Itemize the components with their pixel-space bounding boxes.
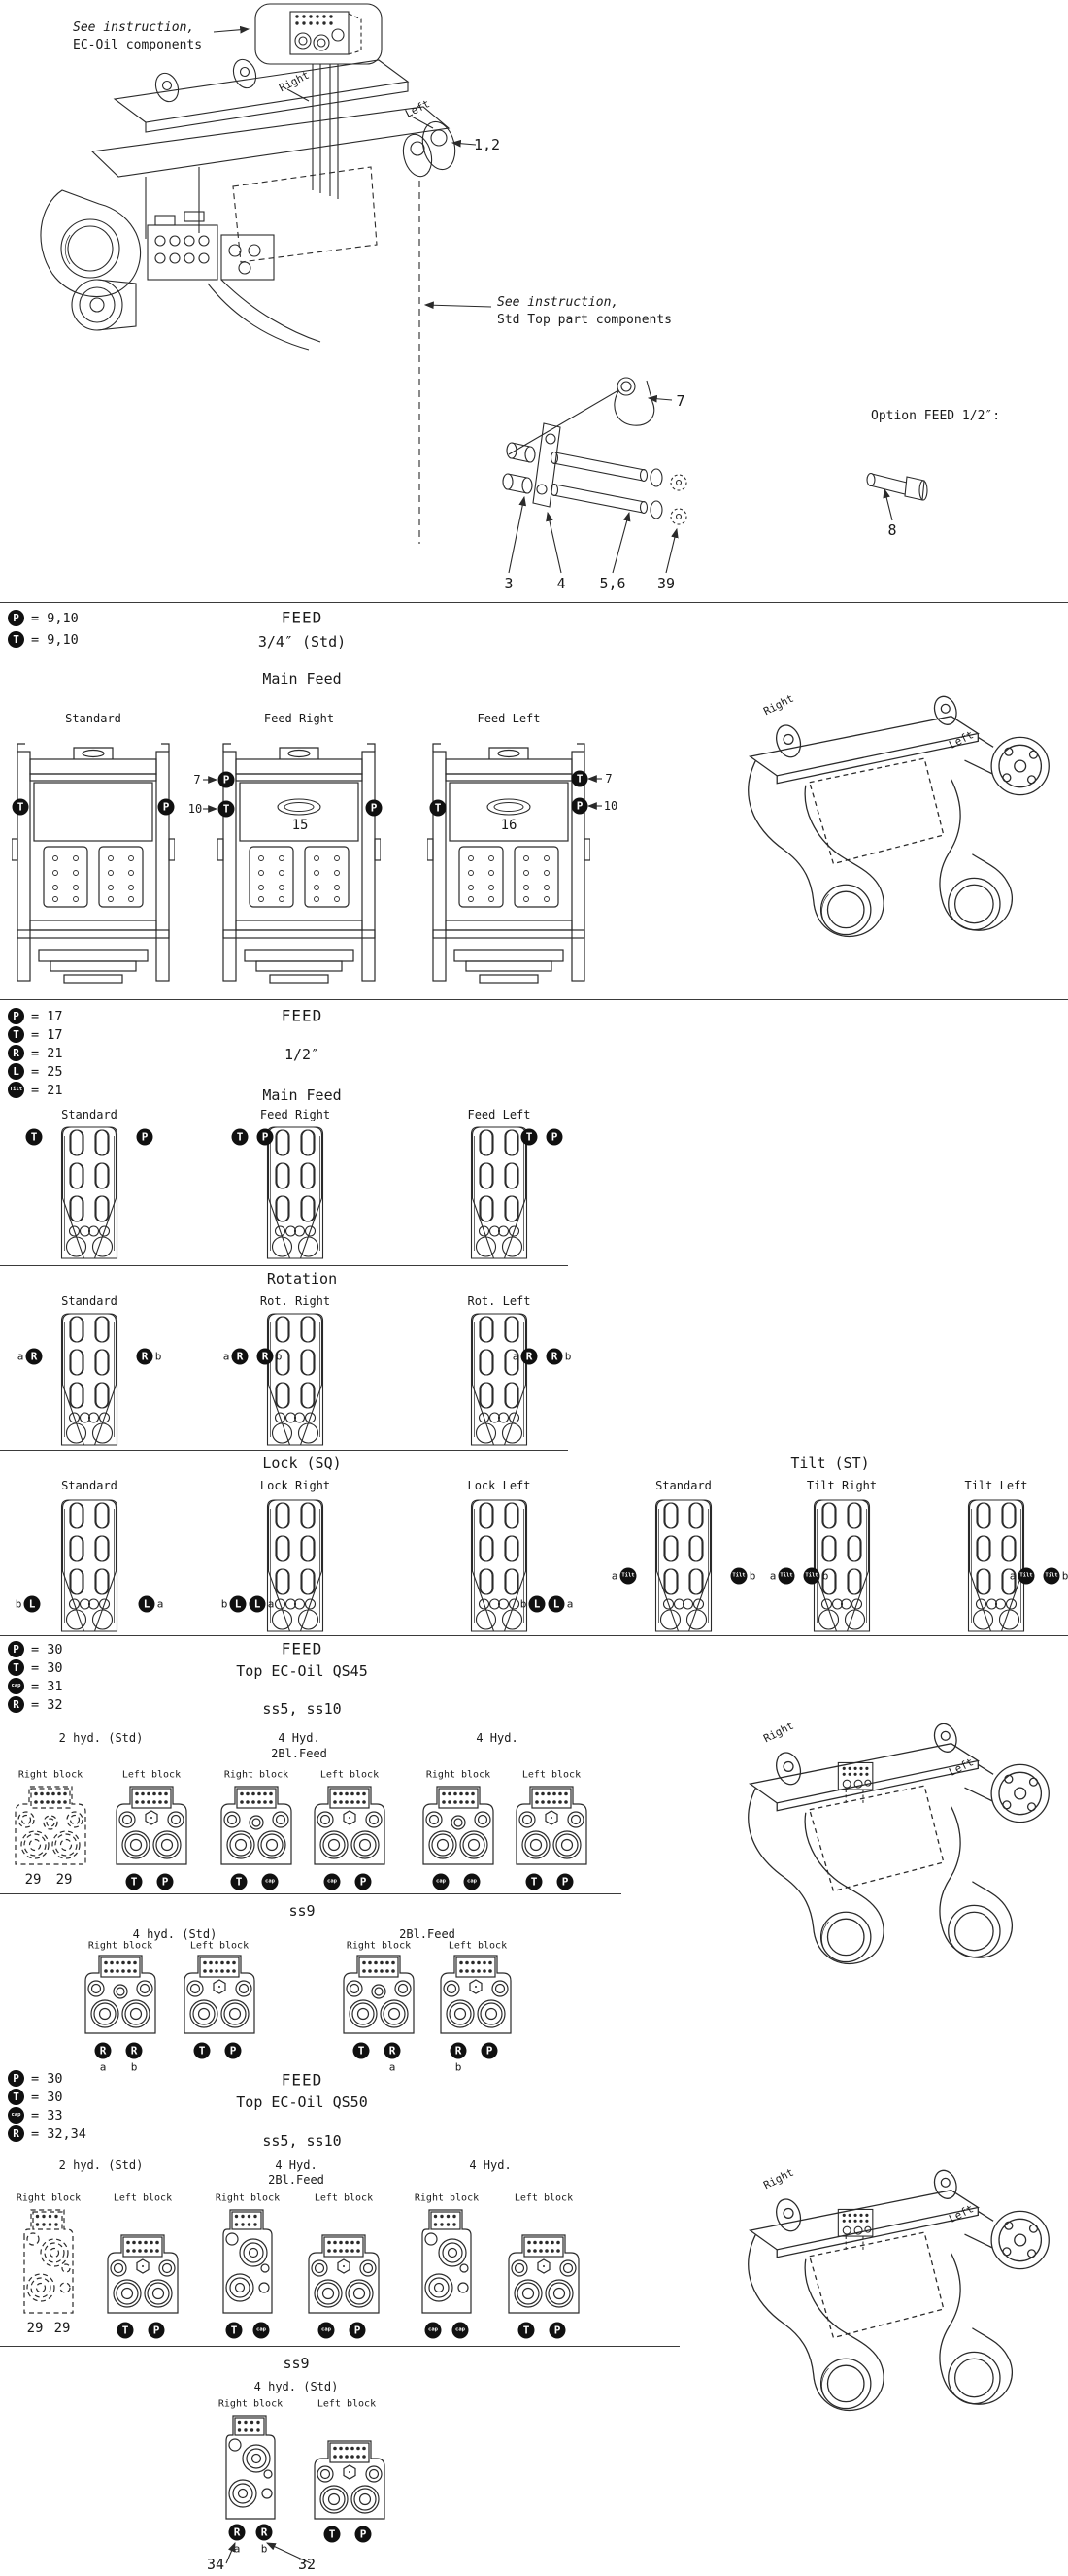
rotation-left-title: Rot. Left xyxy=(467,1294,530,1308)
port-letter-b: b xyxy=(16,1598,22,1611)
port-badge-p: P xyxy=(8,2070,24,2087)
feed12-heading: FEED xyxy=(282,1007,323,1025)
port-letter-b: b xyxy=(750,1570,756,1583)
part-label-1-2: 1,2 xyxy=(474,136,500,153)
hydraulic-block-left xyxy=(181,1952,258,2037)
qs45-ss9-title: ss9 xyxy=(288,1902,315,1920)
feed34-size: 3/4″ (Std) xyxy=(258,633,346,651)
port-badge-cap: cap xyxy=(324,1874,341,1890)
port-badge-t: T xyxy=(526,1874,543,1890)
qs45-sizes: ss5, ss10 xyxy=(262,1700,341,1718)
legend-value: = 17 xyxy=(31,1027,63,1043)
qs45-ss9-cfg2-title: 2Bl.Feed xyxy=(399,1927,455,1941)
port-badge-p: P xyxy=(137,1129,153,1146)
port-letter-b: b xyxy=(155,1351,162,1363)
port-badge-cap: cap xyxy=(253,2323,270,2339)
plate-pair xyxy=(223,1311,367,1447)
port-badge-p: P xyxy=(355,1874,372,1890)
coupler-side-view-drawing-3 xyxy=(723,2165,1068,2453)
left-block-label: Left block xyxy=(114,2193,172,2204)
hydraulic-block-left xyxy=(513,1783,590,1868)
right-block-label: Right block xyxy=(426,1770,490,1781)
part-label-8: 8 xyxy=(887,521,896,539)
qs45-heading: FEED xyxy=(282,1640,323,1658)
port-badge-r: R xyxy=(8,2125,24,2142)
subsection-divider xyxy=(0,1450,568,1451)
plate-pair xyxy=(427,1124,571,1260)
port-badge-tilt: Tilt xyxy=(731,1568,748,1585)
qs45-cfg2-title: 4 Hyd. xyxy=(278,1731,319,1745)
port-badge-l: L xyxy=(250,1596,266,1613)
port-badge-l: L xyxy=(529,1596,546,1613)
port-badge-p: P xyxy=(8,610,24,626)
port-badge-t: T xyxy=(572,771,588,787)
port-letter-a: a xyxy=(223,1351,230,1363)
legend-value: = 32,34 xyxy=(31,2126,86,2142)
port-badge-t: T xyxy=(13,799,29,816)
port-letter-a: a xyxy=(389,2061,396,2074)
hydraulic-block-left xyxy=(311,2437,388,2523)
port-letter-b: b xyxy=(1062,1570,1068,1583)
port-badge-p: P xyxy=(157,1874,174,1890)
part-label-29: 29 xyxy=(56,1872,73,1888)
legend-row-r: R = 32 xyxy=(8,1696,63,1713)
port-badge-r: R xyxy=(126,2043,143,2059)
left-block-label: Left block xyxy=(320,1770,379,1781)
qs45-cfg1-title: 2 hyd. (Std) xyxy=(59,1731,144,1745)
part-label-3: 3 xyxy=(504,575,513,592)
subsection-divider xyxy=(0,1265,568,1266)
plate-pair xyxy=(223,1497,367,1633)
subsection-divider xyxy=(0,1893,621,1894)
port-badge-p: P xyxy=(355,2526,372,2543)
plate-pair xyxy=(427,1497,571,1633)
port-letter-b: b xyxy=(565,1351,572,1363)
legend-row-p: P = 30 xyxy=(8,2070,63,2087)
part-label-15: 15 xyxy=(292,818,309,833)
port-letter-a: a xyxy=(770,1570,777,1583)
subsection-divider xyxy=(0,2346,680,2347)
tilt-left-title: Tilt Left xyxy=(964,1479,1027,1492)
hydraulic-block-right-dashed xyxy=(21,2206,76,2317)
hydraulic-block-left xyxy=(437,1952,515,2037)
port-badge-t: T xyxy=(521,1129,538,1146)
bracket-drawing-feed-left xyxy=(427,730,590,995)
lock-right-title: Lock Right xyxy=(260,1479,330,1492)
port-letter-a: a xyxy=(513,1351,519,1363)
port-badge-l: L xyxy=(549,1596,565,1613)
ref-arrows-right-cfg xyxy=(203,772,218,815)
left-block-label: Left block xyxy=(317,2399,376,2410)
port-badge-tilt: Tilt xyxy=(804,1568,820,1585)
port-badge-p: P xyxy=(8,1641,24,1657)
plate-pair xyxy=(17,1497,161,1633)
main-feed-right-title: Feed Right xyxy=(260,1108,330,1121)
hydraulic-block-right xyxy=(419,2206,474,2317)
port-badge-t: T xyxy=(218,801,235,818)
main-feed-title: Main Feed xyxy=(262,1087,341,1104)
port-letter-b: b xyxy=(822,1570,829,1583)
feed12-size: 1/2″ xyxy=(284,1046,319,1063)
port-badge-t: T xyxy=(226,2323,243,2339)
qs45-cfg3-title: 4 Hyd. xyxy=(476,1731,517,1745)
legend-value: = 9,10 xyxy=(31,611,79,626)
port-badge-l: L xyxy=(8,1063,24,1080)
legend-row-t: T = 30 xyxy=(8,1659,63,1676)
ref-label-10: 10 xyxy=(188,802,202,816)
port-badge-t: T xyxy=(8,631,24,648)
port-badge-p: P xyxy=(557,1874,574,1890)
legend-value: = 21 xyxy=(31,1083,63,1098)
coupler-side-view-drawing-2 xyxy=(723,1719,1068,2006)
port-letter-b: b xyxy=(520,1598,527,1611)
qs50-cfg2-subtitle: 2Bl.Feed xyxy=(268,2173,324,2187)
port-badge-tilt: Tilt xyxy=(620,1568,637,1585)
port-badge-p: P xyxy=(257,1129,274,1146)
port-badge-p: P xyxy=(218,772,235,788)
port-badge-r: R xyxy=(8,1045,24,1061)
port-letter-a: a xyxy=(100,2061,107,2074)
bracket-drawing-feed-right xyxy=(217,730,381,995)
plate-pair xyxy=(770,1497,914,1633)
port-badge-l: L xyxy=(139,1596,155,1613)
legend-row-cap: cap = 31 xyxy=(8,1678,63,1694)
left-block-label: Left block xyxy=(190,1941,249,1952)
qs50-heading: FEED xyxy=(282,2071,323,2090)
legend-value: = 21 xyxy=(31,1046,63,1061)
port-letter-b: b xyxy=(455,2061,462,2074)
qs45-ss9-cfg1-title: 4 hyd. (Std) xyxy=(133,1927,217,1941)
ref-label-7: 7 xyxy=(605,772,612,786)
legend-row-r: R = 21 xyxy=(8,1045,63,1061)
port-badge-tilt: Tilt xyxy=(1044,1568,1060,1585)
qs45-cfg2-subtitle: 2Bl.Feed xyxy=(271,1747,327,1760)
plate-pair xyxy=(17,1124,161,1260)
port-badge-cap: cap xyxy=(464,1874,481,1890)
feed-grommet-right xyxy=(276,798,322,816)
rotation-title: Rotation xyxy=(267,1270,337,1288)
qs50-model: Top EC-Oil QS50 xyxy=(236,2093,367,2111)
legend-value: = 30 xyxy=(31,1660,63,1676)
hydraulic-block-left xyxy=(311,1783,388,1868)
legend-row-t: T = 30 xyxy=(8,2089,63,2105)
legend-value: = 9,10 xyxy=(31,632,79,648)
legend-value: = 31 xyxy=(31,1679,63,1694)
part-label-4: 4 xyxy=(556,575,565,592)
port-badge-t: T xyxy=(194,2043,211,2059)
port-badge-cap: cap xyxy=(452,2323,469,2339)
ref-arrows-left-cfg xyxy=(586,771,602,814)
hydraulic-block-left xyxy=(104,2231,182,2317)
left-block-label: Left block xyxy=(522,1770,581,1781)
part-label-29: 29 xyxy=(54,2321,71,2336)
feed34-group-title: Main Feed xyxy=(262,670,341,687)
legend-value: = 33 xyxy=(31,2108,63,2124)
port-letter-b: b xyxy=(221,1598,228,1611)
ref-label-10: 10 xyxy=(604,799,617,813)
port-badge-p: P xyxy=(550,2323,566,2339)
ec-oil-callout-note: See instruction, EC-Oil components xyxy=(73,19,202,54)
plate-pair xyxy=(17,1311,161,1447)
port-badge-r: R xyxy=(547,1349,563,1365)
legend-row-r: R = 32,34 xyxy=(8,2125,86,2142)
right-block-label: Right block xyxy=(216,2193,280,2204)
port-badge-l: L xyxy=(230,1596,247,1613)
right-block-label: Right block xyxy=(218,2399,283,2410)
legend-row-p: P = 9,10 xyxy=(8,610,79,626)
lock-title: Lock (SQ) xyxy=(262,1455,341,1472)
hydraulic-block-right-dashed xyxy=(12,1783,89,1868)
port-badge-p: P xyxy=(350,2323,366,2339)
port-badge-t: T xyxy=(518,2323,535,2339)
feed34-cfg-standard-title: Standard xyxy=(65,712,121,725)
port-badge-t: T xyxy=(126,1874,143,1890)
port-badge-t: T xyxy=(430,800,447,817)
ec-oil-note-line1: See instruction, xyxy=(73,19,202,37)
std-top-callout-note: See instruction, Std Top part components xyxy=(497,294,672,329)
qs45-model: Top EC-Oil QS45 xyxy=(236,1662,367,1680)
port-badge-r: R xyxy=(137,1349,153,1365)
rotation-right-title: Rot. Right xyxy=(260,1294,330,1308)
part-label-34: 34 xyxy=(207,2556,224,2573)
port-badge-r: R xyxy=(384,2043,401,2059)
port-badge-r: R xyxy=(257,1349,274,1365)
port-badge-p: P xyxy=(149,2323,165,2339)
qs50-cfg2-title: 4 Hyd. xyxy=(275,2158,317,2172)
legend-value: = 30 xyxy=(31,1642,63,1657)
feed34-heading: FEED xyxy=(282,609,323,627)
port-badge-t: T xyxy=(8,2089,24,2105)
qs50-cfg3-title: 4 Hyd. xyxy=(469,2158,511,2172)
section-divider xyxy=(0,602,1068,603)
port-letter-a: a xyxy=(567,1598,574,1611)
part-label-32: 32 xyxy=(298,2556,316,2573)
std-top-note-line2: Std Top part components xyxy=(497,312,672,329)
part-label-29: 29 xyxy=(25,1872,42,1888)
port-letter-b: b xyxy=(276,1351,283,1363)
hydraulic-block-right xyxy=(220,2206,275,2317)
legend-row-t: T = 9,10 xyxy=(8,631,79,648)
left-block-label: Left block xyxy=(515,2193,573,2204)
port-badge-t: T xyxy=(232,1129,249,1146)
coupler-side-view-drawing-1 xyxy=(723,691,1068,979)
legend-value: = 30 xyxy=(31,2090,63,2105)
part-label-7: 7 xyxy=(676,392,684,410)
port-badge-cap: cap xyxy=(425,2323,442,2339)
tilt-title: Tilt (ST) xyxy=(790,1455,869,1472)
port-badge-r: R xyxy=(451,2043,467,2059)
port-letter-a: a xyxy=(17,1351,24,1363)
option-feed-title: Option FEED 1/2″: xyxy=(871,408,1000,425)
port-badge-tilt: Tilt xyxy=(1018,1568,1035,1585)
legend-value: = 17 xyxy=(31,1009,63,1024)
port-badge-t: T xyxy=(8,1026,24,1043)
port-badge-t: T xyxy=(353,2043,370,2059)
port-badge-t: T xyxy=(8,1659,24,1676)
hydraulic-block-left xyxy=(505,2231,583,2317)
port-badge-t: T xyxy=(324,2526,341,2543)
port-badge-p: P xyxy=(547,1129,563,1146)
left-block-label: Left block xyxy=(449,1941,507,1952)
legend-row-l: L = 25 xyxy=(8,1063,63,1080)
legend-row-p: P = 17 xyxy=(8,1008,63,1024)
right-block-label: Right block xyxy=(18,1770,83,1781)
legend-row-tilt: Tilt = 21 xyxy=(8,1082,63,1098)
plate-pair xyxy=(924,1497,1068,1633)
legend-row-t: T = 17 xyxy=(8,1026,63,1043)
feed-grommet-left xyxy=(485,798,532,816)
part-label-16: 16 xyxy=(501,818,517,833)
port-badge-t: T xyxy=(231,1874,248,1890)
legend-value: = 32 xyxy=(31,1697,63,1713)
main-feed-standard-title: Standard xyxy=(61,1108,117,1121)
port-badge-tilt: Tilt xyxy=(8,1082,24,1098)
port-badge-cap: cap xyxy=(318,2323,335,2339)
qs50-ss9-title: ss9 xyxy=(283,2355,309,2372)
plate-pair xyxy=(223,1124,367,1260)
port-badge-r: R xyxy=(8,1696,24,1713)
lock-left-title: Lock Left xyxy=(467,1479,530,1492)
hydraulic-block-right xyxy=(223,2412,278,2523)
port-badge-r: R xyxy=(26,1349,43,1365)
feed34-cfg-feed-right-title: Feed Right xyxy=(264,712,334,725)
port-badge-r: R xyxy=(95,2043,112,2059)
right-block-label: Right block xyxy=(415,2193,479,2204)
rotation-standard-title: Standard xyxy=(61,1294,117,1308)
plate-pair xyxy=(427,1311,571,1447)
legend-row-p: P = 30 xyxy=(8,1641,63,1657)
port-badge-r: R xyxy=(521,1349,538,1365)
hydraulic-block-left xyxy=(113,1783,190,1868)
port-badge-p: P xyxy=(8,1008,24,1024)
tilt-right-title: Tilt Right xyxy=(807,1479,877,1492)
legend-value: = 25 xyxy=(31,1064,63,1080)
feed34-cfg-feed-left-title: Feed Left xyxy=(477,712,540,725)
section-divider xyxy=(0,1635,1068,1636)
right-block-label: Right block xyxy=(347,1941,411,1952)
port-badge-l: L xyxy=(24,1596,41,1613)
part-label-39: 39 xyxy=(657,575,675,592)
tilt-standard-title: Standard xyxy=(655,1479,712,1492)
part-label-29: 29 xyxy=(27,2321,44,2336)
port-letter-a: a xyxy=(157,1598,164,1611)
port-badge-cap: cap xyxy=(433,1874,450,1890)
legend-value: = 30 xyxy=(31,2071,63,2087)
plate-pair xyxy=(612,1497,755,1633)
hydraulic-block-left xyxy=(305,2231,383,2317)
qs50-sizes: ss5, ss10 xyxy=(262,2132,341,2150)
port-badge-t: T xyxy=(117,2323,134,2339)
right-block-label: Right block xyxy=(224,1770,288,1781)
bracket-drawing-standard xyxy=(12,730,175,995)
left-block-label: Left block xyxy=(122,1770,181,1781)
port-badge-p: P xyxy=(572,798,588,815)
section-divider xyxy=(0,999,1068,1000)
hydraulic-block-right xyxy=(82,1952,159,2037)
port-badge-p: P xyxy=(158,799,175,816)
ref-label-7: 7 xyxy=(193,773,200,786)
port-badge-p: P xyxy=(225,2043,242,2059)
part-label-5-6: 5,6 xyxy=(599,575,625,592)
qs50-ss9-cfg1-title: 4 hyd. (Std) xyxy=(254,2380,339,2393)
parts-diagram-page: See instruction, EC-Oil components Right… xyxy=(0,0,1068,2576)
port-badge-t: T xyxy=(26,1129,43,1146)
right-block-label: Right block xyxy=(88,1941,152,1952)
std-top-note-line1: See instruction, xyxy=(497,294,672,312)
port-letter-b: b xyxy=(131,2061,138,2074)
port-letter-a: a xyxy=(1010,1570,1017,1583)
port-badge-r: R xyxy=(232,1349,249,1365)
port-badge-cap: cap xyxy=(8,1678,24,1694)
left-block-label: Left block xyxy=(315,2193,373,2204)
hydraulic-block-right xyxy=(340,1952,417,2037)
port-letter-a: a xyxy=(612,1570,618,1583)
qs50-cfg1-title: 2 hyd. (Std) xyxy=(59,2158,144,2172)
port-badge-cap: cap xyxy=(8,2107,24,2124)
port-badge-p: P xyxy=(366,800,383,817)
lock-standard-title: Standard xyxy=(61,1479,117,1492)
right-block-label: Right block xyxy=(17,2193,81,2204)
port-badge-p: P xyxy=(482,2043,498,2059)
hydraulic-block-right xyxy=(217,1783,295,1868)
port-letter-a: a xyxy=(268,1598,275,1611)
legend-row-cap: cap = 33 xyxy=(8,2107,63,2124)
hydraulic-block-right xyxy=(419,1783,497,1868)
ec-oil-note-line2: EC-Oil components xyxy=(73,37,202,54)
main-feed-left-title: Feed Left xyxy=(467,1108,530,1121)
port-badge-tilt: Tilt xyxy=(779,1568,795,1585)
port-badge-cap: cap xyxy=(262,1874,279,1890)
